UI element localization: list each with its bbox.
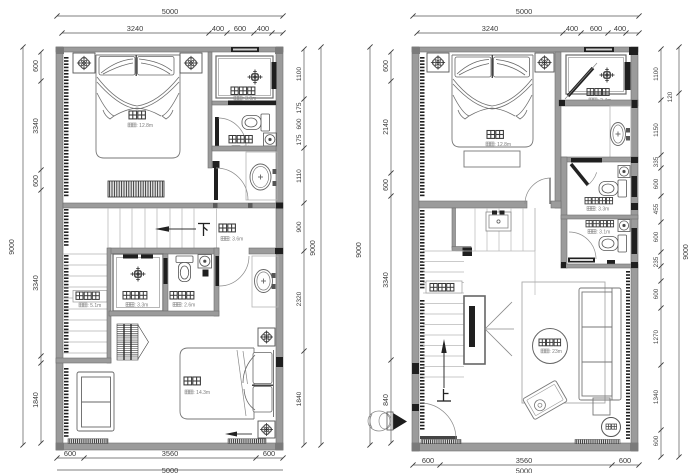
svg-text:: 12.8m: : 12.8m: [494, 142, 511, 148]
svg-text:600: 600: [653, 231, 660, 242]
svg-text:9000: 9000: [356, 242, 363, 258]
svg-text:600: 600: [296, 118, 303, 129]
svg-text:600: 600: [590, 24, 602, 33]
svg-text:840: 840: [383, 394, 390, 406]
svg-text:: 3.3m: : 3.3m: [595, 207, 609, 213]
svg-text:175: 175: [296, 102, 303, 113]
svg-text:5000: 5000: [516, 7, 532, 16]
svg-text:600: 600: [383, 60, 390, 72]
svg-text:175: 175: [296, 134, 303, 145]
svg-text:1840: 1840: [33, 392, 40, 408]
svg-text:: 14.3m: : 14.3m: [193, 390, 210, 396]
svg-text:5000: 5000: [162, 7, 178, 16]
svg-text:: 3.3m: : 3.3m: [134, 303, 148, 309]
svg-text:: 12.8m: : 12.8m: [136, 123, 153, 129]
svg-text:1100: 1100: [653, 67, 660, 81]
svg-text:400: 400: [257, 24, 269, 33]
svg-text:400: 400: [614, 24, 626, 33]
svg-text:1340: 1340: [653, 389, 660, 404]
svg-text:400: 400: [212, 24, 224, 33]
svg-text:3240: 3240: [127, 24, 143, 33]
svg-text:5000: 5000: [162, 466, 178, 473]
svg-text:600: 600: [33, 175, 40, 187]
svg-text:335: 335: [653, 156, 660, 167]
svg-text:2320: 2320: [296, 291, 303, 306]
svg-text:5000: 5000: [516, 467, 532, 473]
svg-text:9000: 9000: [9, 239, 16, 255]
svg-text:3240: 3240: [482, 24, 498, 33]
svg-text:3340: 3340: [33, 275, 40, 291]
svg-text:600: 600: [653, 435, 660, 446]
svg-text:1110: 1110: [296, 169, 303, 183]
svg-text:1150: 1150: [653, 123, 660, 137]
svg-text:9000: 9000: [683, 244, 690, 260]
svg-text:600: 600: [619, 456, 631, 465]
svg-text:120: 120: [667, 91, 674, 102]
svg-text:3340: 3340: [383, 272, 390, 288]
svg-text:600: 600: [33, 60, 40, 72]
svg-text:1100: 1100: [296, 67, 303, 82]
svg-text:: 3.1m: : 3.1m: [596, 230, 610, 236]
svg-text:900: 900: [296, 221, 303, 232]
svg-text:1270: 1270: [653, 329, 660, 344]
svg-text:: 5.1m: : 5.1m: [87, 303, 101, 309]
svg-text:600: 600: [653, 178, 660, 189]
svg-text:1840: 1840: [296, 391, 303, 406]
svg-text:: 23m: : 23m: [549, 349, 562, 355]
svg-text:455: 455: [653, 203, 660, 214]
svg-text:600: 600: [422, 456, 434, 465]
svg-text:: 3.6m: : 3.6m: [229, 237, 243, 243]
svg-text:3340: 3340: [33, 118, 40, 134]
svg-text:: 2.6m: : 2.6m: [181, 303, 195, 309]
svg-text:2140: 2140: [383, 119, 390, 135]
svg-text:600: 600: [383, 179, 390, 191]
svg-text:3560: 3560: [516, 456, 532, 465]
svg-text:600: 600: [653, 288, 660, 299]
svg-text:9000: 9000: [310, 240, 317, 256]
svg-text:600: 600: [234, 24, 246, 33]
svg-text:400: 400: [566, 24, 578, 33]
svg-text:235: 235: [653, 256, 660, 267]
